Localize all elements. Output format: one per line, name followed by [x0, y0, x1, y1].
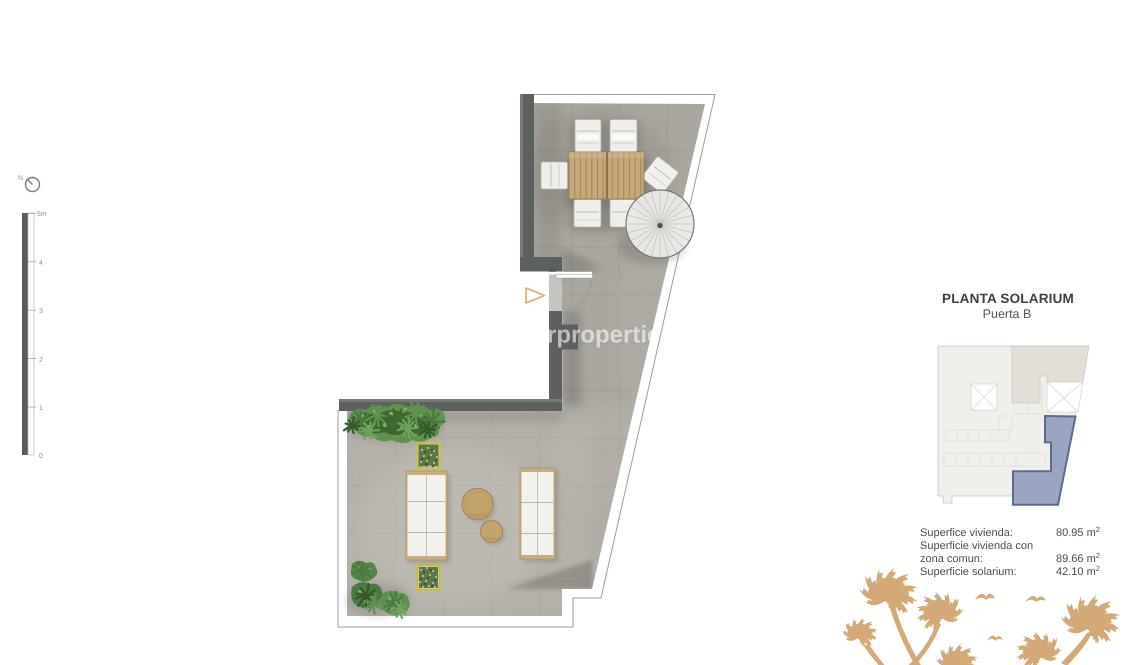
- svg-text:1: 1: [39, 405, 43, 412]
- svg-text:Puerta B: Puerta B: [983, 307, 1032, 321]
- svg-text:rproperties: rproperties: [547, 322, 674, 349]
- svg-text:N: N: [18, 175, 23, 182]
- svg-text:89.66 m2: 89.66 m2: [1056, 551, 1100, 565]
- svg-text:Superficie vivienda con: Superficie vivienda con: [920, 540, 1033, 552]
- svg-text:3: 3: [39, 308, 43, 315]
- svg-text:2: 2: [39, 357, 43, 364]
- svg-text:0: 0: [39, 453, 43, 460]
- svg-text:PLANTA SOLARIUM: PLANTA SOLARIUM: [942, 291, 1074, 306]
- svg-text:80.95 m2: 80.95 m2: [1056, 525, 1100, 539]
- svg-text:4: 4: [39, 260, 43, 267]
- svg-text:Superfice vivienda:: Superfice vivienda:: [920, 527, 1013, 539]
- svg-text:42.10 m2: 42.10 m2: [1056, 564, 1100, 578]
- svg-text:Superficie solarium:: Superficie solarium:: [920, 566, 1017, 578]
- svg-text:zona comun:: zona comun:: [920, 553, 983, 565]
- svg-text:5m: 5m: [37, 211, 47, 218]
